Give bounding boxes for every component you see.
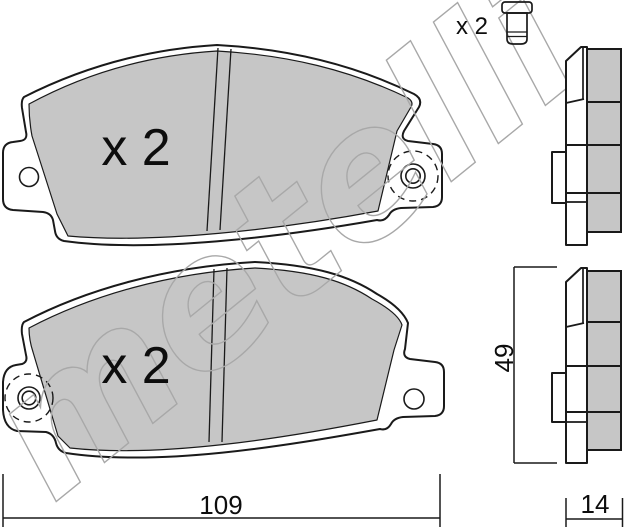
top-pad-left-mounting-hole xyxy=(20,168,39,187)
dimension-length-value: 109 xyxy=(199,490,242,520)
drawing-svg: metelli x 2 x 2 x 2 109 xyxy=(0,0,624,527)
side-top-spring-tab xyxy=(552,152,566,203)
side-bottom-friction-block xyxy=(587,271,621,450)
side-bottom-spring-tab xyxy=(552,373,566,422)
top-pad-quantity-label: x 2 xyxy=(101,119,170,177)
rivet-quantity-label: x 2 xyxy=(456,13,488,40)
side-view-bottom xyxy=(552,268,621,463)
brake-pad-technical-drawing: metelli x 2 x 2 x 2 109 xyxy=(0,0,624,527)
dimension-thickness-value: 14 xyxy=(581,489,610,519)
bottom-pad-quantity-label: x 2 xyxy=(101,337,170,395)
dimension-thickness: 14 xyxy=(566,489,623,527)
dimension-height: 49 xyxy=(489,267,557,463)
side-top-friction-block xyxy=(587,49,621,232)
bottom-pad-right-mounting-hole xyxy=(404,389,424,409)
dimension-height-value: 49 xyxy=(489,344,519,373)
